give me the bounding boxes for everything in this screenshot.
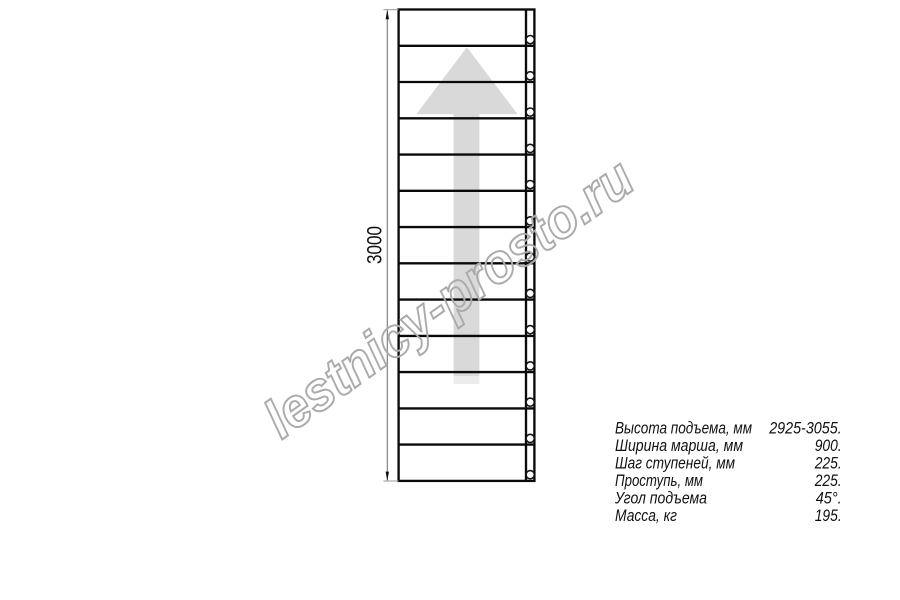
svg-text:Масса, кг: Масса, кг [615,506,677,525]
svg-text:Ширина марша, мм: Ширина марша, мм [615,436,743,455]
svg-text:Шаг ступеней, мм: Шаг ступеней, мм [615,453,735,472]
svg-text:3000: 3000 [361,226,386,264]
svg-text:195.: 195. [815,506,842,525]
svg-text:Проступь, мм: Проступь, мм [615,471,703,490]
svg-text:225.: 225. [814,453,842,472]
svg-text:Угол подъема: Угол подъема [614,488,707,507]
svg-text:2925-3055.: 2925-3055. [768,418,841,437]
svg-text:900.: 900. [815,436,842,455]
svg-text:225.: 225. [814,471,842,490]
svg-text:45°.: 45°. [816,488,842,507]
svg-text:Высота подъема, мм: Высота подъема, мм [615,418,752,437]
